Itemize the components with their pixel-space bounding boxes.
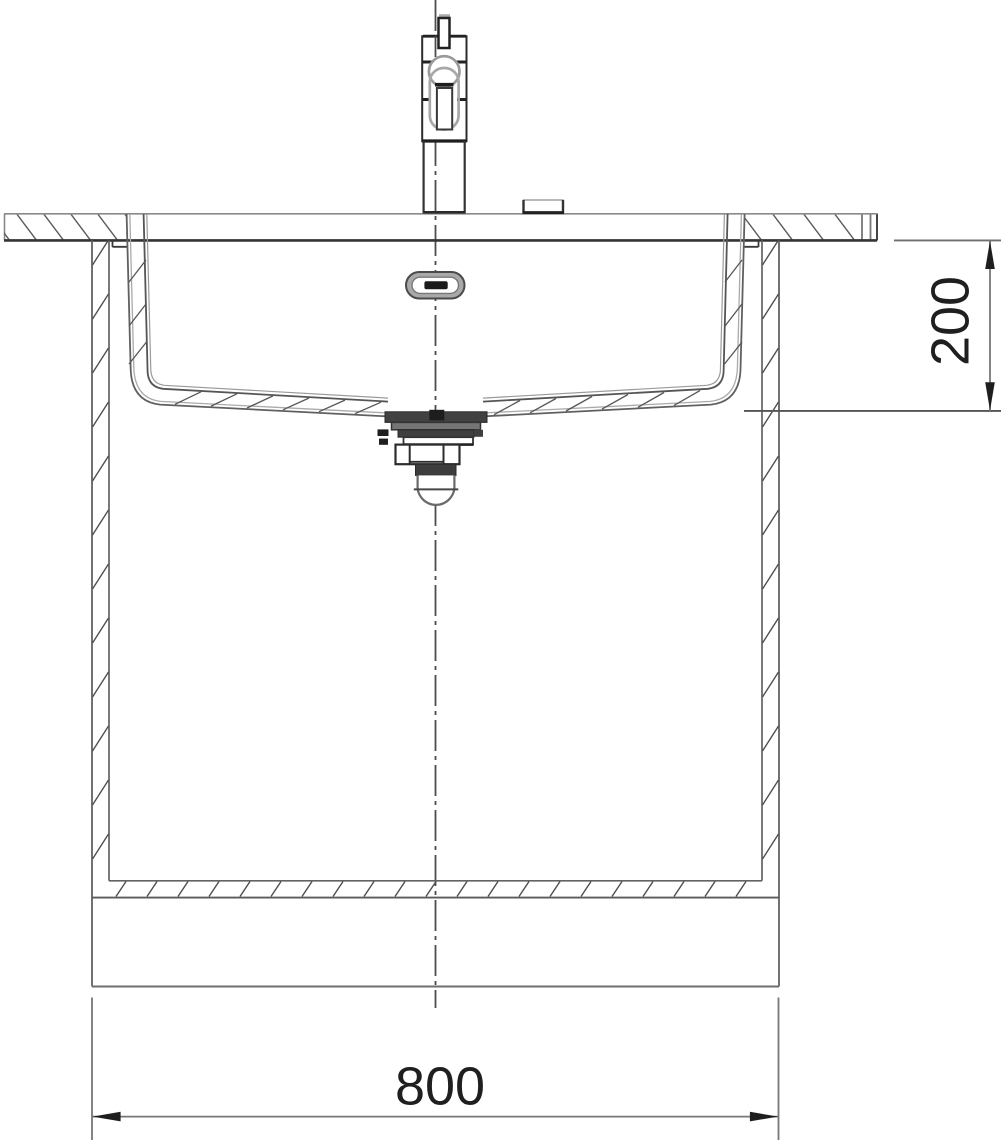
svg-text:800: 800: [395, 1057, 485, 1117]
svg-text:200: 200: [921, 276, 981, 366]
